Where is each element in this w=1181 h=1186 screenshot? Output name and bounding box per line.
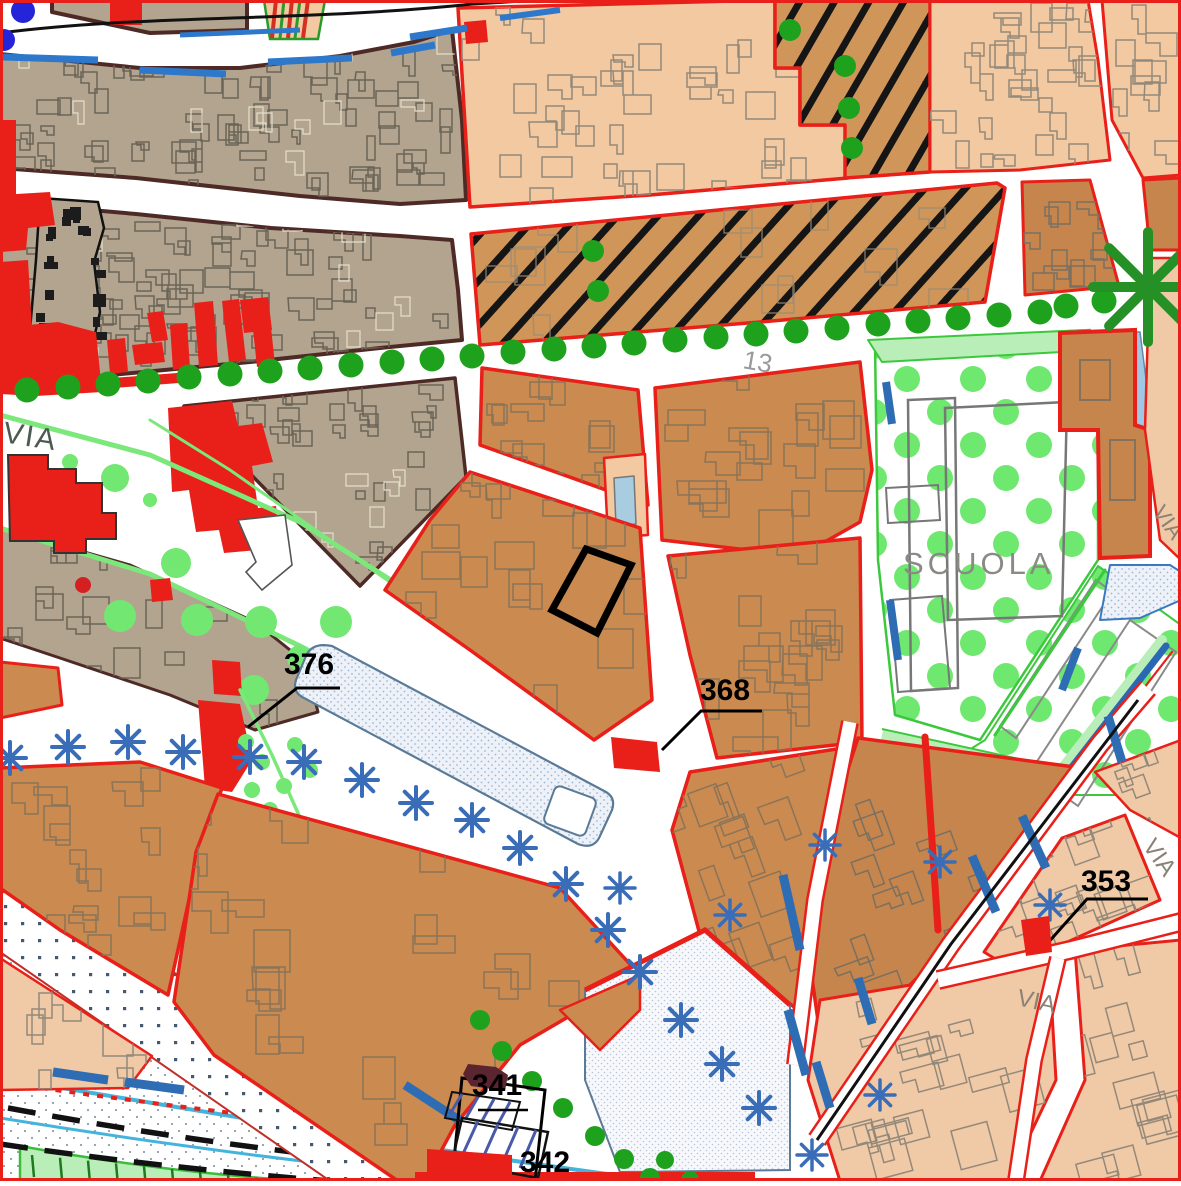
svg-text:353: 353 — [1081, 865, 1131, 898]
svg-text:342: 342 — [520, 1146, 570, 1179]
svg-text:376: 376 — [284, 648, 334, 681]
svg-text:SCUOLA: SCUOLA — [903, 546, 1054, 581]
svg-text:368: 368 — [700, 674, 750, 707]
svg-text:13: 13 — [741, 344, 775, 379]
